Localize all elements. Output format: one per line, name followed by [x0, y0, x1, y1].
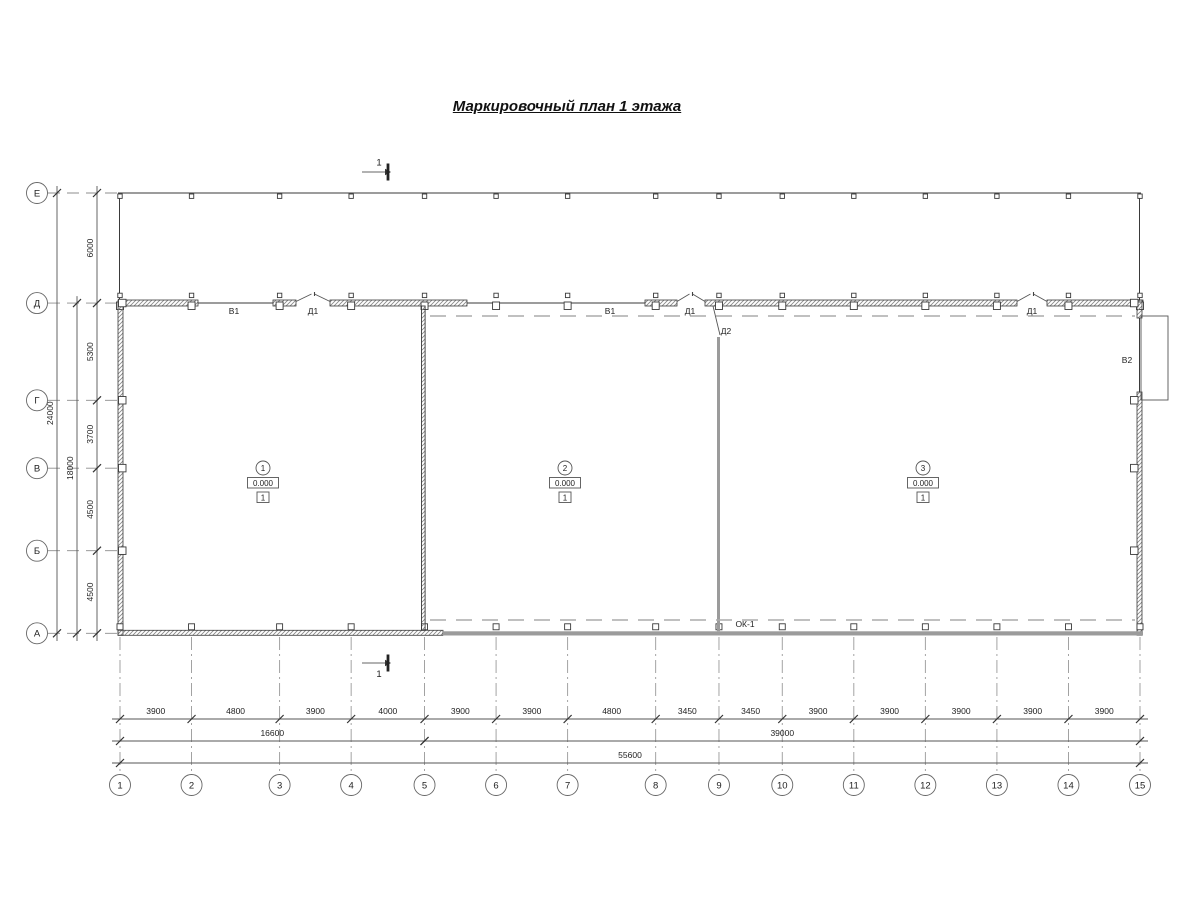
wall-right — [1131, 299, 1169, 635]
wall-axis-d — [117, 292, 1144, 310]
room-number: 2 — [563, 464, 568, 473]
column-marker — [1066, 194, 1070, 198]
dim-col-span: 3900 — [451, 706, 470, 716]
axis-grid-lines — [48, 193, 1140, 774]
column-marker — [277, 624, 283, 630]
column-axis-label: 15 — [1135, 780, 1146, 791]
column-marker — [717, 194, 721, 198]
dim-col-total: 55600 — [618, 750, 642, 760]
dim-row-subtotal: 18000 — [65, 456, 75, 480]
dim-row-span: 3700 — [85, 425, 95, 444]
column-marker — [994, 624, 1000, 630]
opening-mark: Д1 — [308, 306, 319, 316]
column-axis-label: 9 — [716, 780, 721, 791]
column-axis-label: 8 — [653, 780, 658, 791]
column-axis-label: 6 — [493, 780, 498, 791]
column-axis-label: 10 — [777, 780, 788, 791]
column-marker — [995, 293, 999, 297]
room-elevation: 0.000 — [913, 479, 934, 488]
row-axis-label: Д — [34, 298, 41, 309]
column-marker — [349, 293, 353, 297]
row-axis-label: А — [34, 629, 41, 640]
axis-bubbles-bottom: 123456789101112131415 — [110, 775, 1151, 796]
column-face — [188, 302, 195, 310]
dim-row-span: 6000 — [85, 238, 95, 257]
dim-col-span: 4800 — [226, 706, 245, 716]
column-marker — [349, 194, 353, 198]
column-marker — [923, 194, 927, 198]
column-axis-label: 11 — [849, 780, 859, 791]
column-marker — [494, 194, 498, 198]
drawing-sheet: Маркировочный план 1 этажа 6000530037004… — [0, 0, 1200, 900]
column-face — [715, 302, 722, 310]
floor-type: 1 — [921, 493, 926, 502]
column-marker — [565, 293, 569, 297]
column-marker — [852, 293, 856, 297]
dim-col-span: 4800 — [602, 706, 621, 716]
column-marker — [277, 194, 281, 198]
gate-platform — [1141, 316, 1168, 400]
column-marker — [189, 194, 193, 198]
column-axis-label: 4 — [349, 780, 354, 791]
row-axis-label: Е — [34, 188, 40, 199]
column-face — [276, 302, 283, 310]
floor-type: 1 — [563, 493, 568, 502]
column-axis-label: 2 — [189, 780, 194, 791]
dimension-left: 600053003700450045001800024000 — [45, 186, 101, 641]
wall-axis-a — [117, 624, 1143, 636]
column-marker — [1066, 293, 1070, 297]
column-marker — [1137, 624, 1143, 630]
opening-mark: В1 — [605, 306, 616, 316]
column-marker — [1131, 464, 1139, 472]
dim-col-span: 3450 — [678, 706, 697, 716]
row-axis-label: Б — [34, 546, 40, 557]
opening-mark: В2 — [1122, 355, 1133, 365]
room-elevation: 0.000 — [555, 479, 576, 488]
column-face — [993, 302, 1000, 310]
column-marker — [780, 194, 784, 198]
section-label: 1 — [376, 669, 381, 680]
column-marker — [1138, 194, 1142, 198]
dim-col-span: 3900 — [880, 706, 899, 716]
dim-col-span: 3450 — [741, 706, 760, 716]
column-axis-label: 14 — [1063, 780, 1074, 791]
opening-mark: Д2 — [721, 326, 732, 336]
room-elevation: 0.000 — [253, 479, 274, 488]
dim-row-span: 4500 — [85, 500, 95, 519]
column-axis-label: 12 — [920, 780, 931, 791]
floor-type: 1 — [261, 493, 266, 502]
column-face — [564, 302, 571, 310]
wall-left — [118, 299, 126, 635]
column-marker — [118, 293, 122, 297]
column-marker — [119, 299, 127, 307]
dim-row-span: 5300 — [85, 342, 95, 361]
column-axis-label: 7 — [565, 780, 570, 791]
column-face — [922, 302, 929, 310]
floor-plan-drawing: 6000530037004500450018000240003900480039… — [0, 0, 1200, 900]
dim-col-span: 3900 — [1095, 706, 1114, 716]
column-marker — [1131, 299, 1139, 307]
column-marker — [422, 194, 426, 198]
column-marker — [653, 194, 657, 198]
column-marker — [1065, 624, 1071, 630]
column-marker — [923, 293, 927, 297]
section-markers: 11 — [362, 158, 391, 681]
column-marker — [922, 624, 928, 630]
column-marker — [995, 194, 999, 198]
ribbon-window-ok1 — [443, 631, 1143, 635]
column-marker — [348, 624, 354, 630]
column-marker — [1131, 547, 1139, 555]
dim-col-span: 3900 — [809, 706, 828, 716]
column-marker — [565, 194, 569, 198]
column-marker — [493, 624, 499, 630]
room-number: 1 — [261, 464, 266, 473]
partition-gray — [717, 337, 720, 631]
dim-col-span: 3900 — [1023, 706, 1042, 716]
column-marker — [422, 293, 426, 297]
column-marker — [189, 624, 195, 630]
row-axis-label: В — [34, 464, 40, 475]
column-marker — [119, 464, 127, 472]
column-marker — [779, 624, 785, 630]
dimension-bottom: 3900480039004000390039004800345034503900… — [112, 706, 1148, 767]
column-marker — [717, 293, 721, 297]
column-face — [850, 302, 857, 310]
dim-col-span: 3900 — [306, 706, 325, 716]
column-marker — [780, 293, 784, 297]
column-marker — [851, 624, 857, 630]
column-axis-label: 5 — [422, 780, 427, 791]
column-marker — [653, 293, 657, 297]
column-marker — [117, 624, 123, 630]
row-axis-label: Г — [34, 396, 39, 407]
column-marker — [1138, 293, 1142, 297]
column-axis-label: 1 — [117, 780, 122, 791]
column-marker — [119, 397, 127, 405]
column-marker — [189, 293, 193, 297]
column-marker — [653, 624, 659, 630]
room-stamps: 10.000120.000130.0001 — [248, 461, 939, 503]
dim-col-span: 4000 — [378, 706, 397, 716]
dim-col-subtotal: 39000 — [770, 728, 794, 738]
top-strip-walls — [118, 193, 1142, 300]
column-face — [493, 302, 500, 310]
opening-mark: В1 — [229, 306, 240, 316]
section-label: 1 — [376, 158, 381, 169]
column-face — [652, 302, 659, 310]
overhead-dashed — [430, 316, 1135, 620]
column-face — [779, 302, 786, 310]
opening-mark: Д1 — [685, 306, 696, 316]
opening-mark: ОК-1 — [735, 619, 754, 629]
column-face — [348, 302, 355, 310]
dim-col-span: 3900 — [952, 706, 971, 716]
column-marker — [118, 194, 122, 198]
page-title: Маркировочный план 1 этажа — [453, 98, 681, 115]
column-axis-label: 3 — [277, 780, 282, 791]
column-marker — [852, 194, 856, 198]
dim-col-subtotal: 16600 — [260, 728, 284, 738]
column-marker — [1131, 397, 1139, 405]
dim-col-span: 3900 — [146, 706, 165, 716]
column-marker — [494, 293, 498, 297]
dim-row-span: 4500 — [85, 582, 95, 601]
room-number: 3 — [921, 464, 926, 473]
column-axis-label: 13 — [992, 780, 1003, 791]
column-marker — [565, 624, 571, 630]
column-marker — [119, 547, 127, 555]
column-marker — [277, 293, 281, 297]
opening-mark: Д1 — [1027, 306, 1038, 316]
column-face — [1065, 302, 1072, 310]
dim-col-span: 3900 — [522, 706, 541, 716]
opening-marks: В1Д1В1Д1Д2Д1В2ОК-1 — [229, 306, 1133, 629]
